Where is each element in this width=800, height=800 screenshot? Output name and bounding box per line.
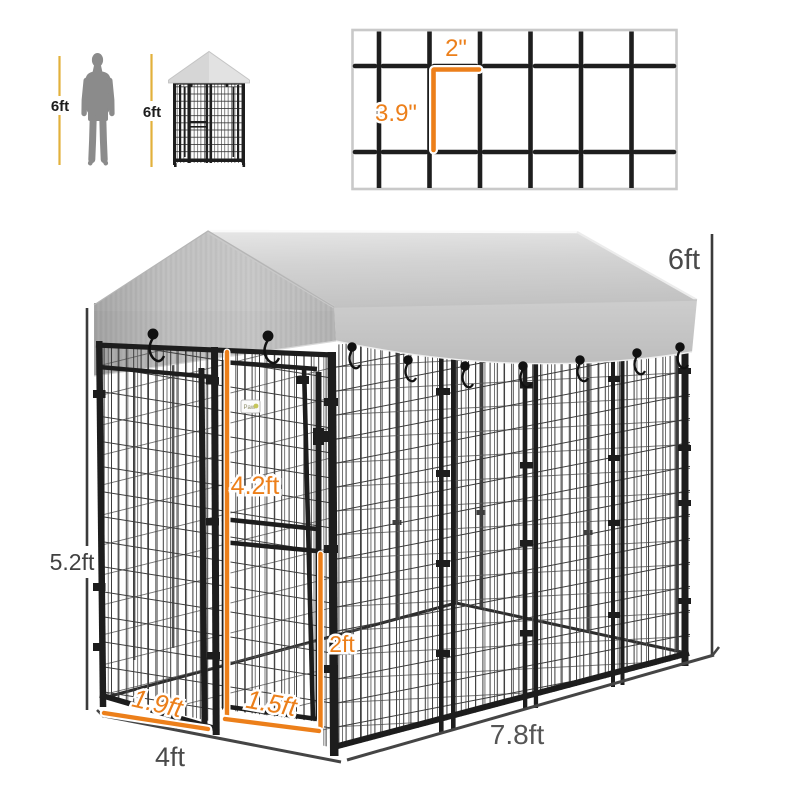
svg-text:4ft: 4ft [155,742,186,772]
svg-text:2ft: 2ft [329,631,355,657]
svg-text:5.2ft: 5.2ft [50,549,95,575]
svg-text:4.2ft: 4.2ft [231,472,280,500]
svg-text:6ft: 6ft [668,244,700,276]
svg-text:6ft: 6ft [51,98,69,115]
svg-text:2": 2" [445,35,467,62]
svg-text:6ft: 6ft [143,104,161,121]
svg-text:7.8ft: 7.8ft [490,719,545,750]
svg-text:3.9": 3.9" [375,100,417,127]
